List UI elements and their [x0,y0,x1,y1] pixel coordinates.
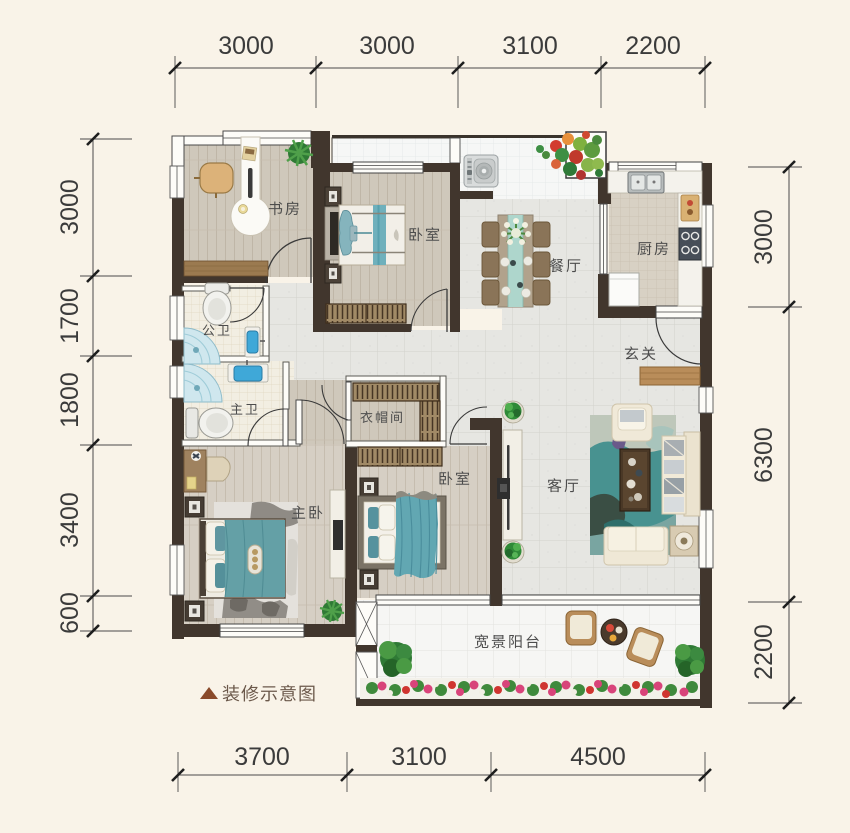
svg-text:3000: 3000 [56,179,84,235]
svg-text:1700: 1700 [56,288,84,344]
svg-text:2200: 2200 [625,32,681,60]
svg-text:3100: 3100 [502,32,558,60]
svg-text:6300: 6300 [750,427,778,483]
svg-text:3700: 3700 [234,743,290,771]
svg-text:4500: 4500 [570,743,626,771]
svg-text:2200: 2200 [750,624,778,680]
svg-text:3000: 3000 [218,32,274,60]
svg-text:1800: 1800 [56,372,84,428]
svg-text:3000: 3000 [359,32,415,60]
svg-text:600: 600 [56,592,84,634]
svg-text:3400: 3400 [56,492,84,548]
svg-text:3100: 3100 [391,743,447,771]
svg-text:3000: 3000 [750,209,778,265]
